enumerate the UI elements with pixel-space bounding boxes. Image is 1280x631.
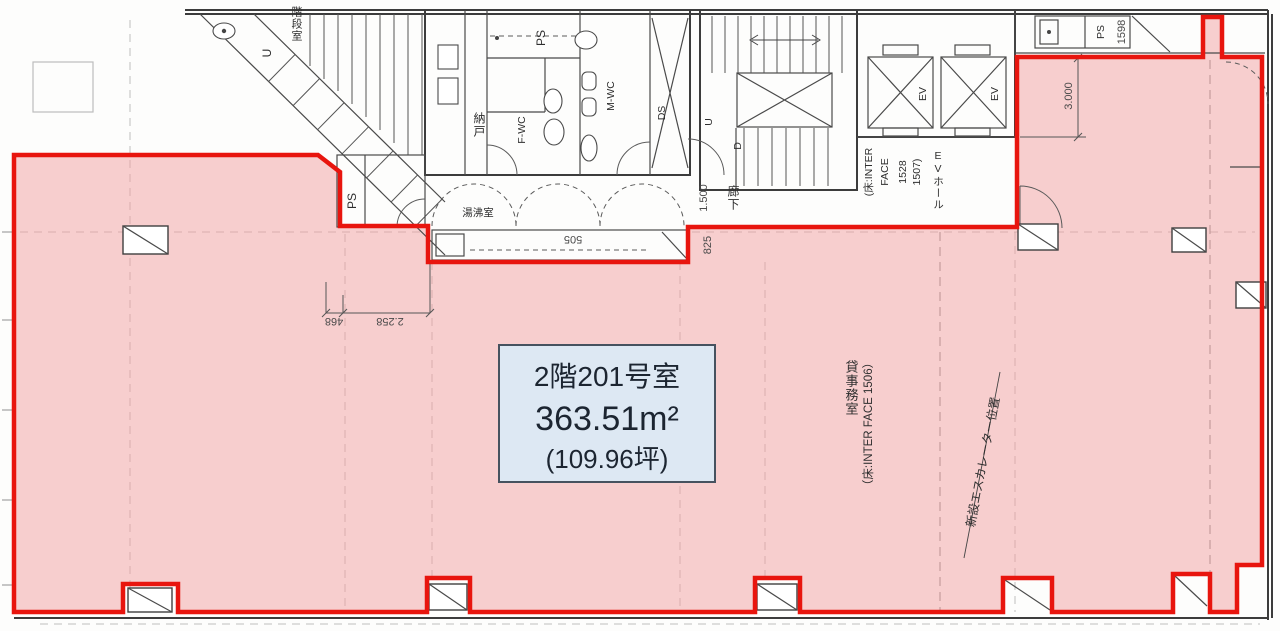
duct-shaft-label: DS bbox=[656, 106, 668, 121]
toilet-fixture bbox=[544, 89, 562, 113]
ev-hall-floor-note-3: 1528 bbox=[897, 160, 909, 184]
sink-fixture bbox=[581, 135, 597, 161]
dim-2258: 2.258 bbox=[376, 315, 404, 327]
corridor-width-dim: 1.500 bbox=[698, 184, 710, 212]
corridor-label: 廊下 bbox=[726, 184, 740, 211]
dim-468: 468 bbox=[325, 315, 343, 327]
office-floor-note: （床:INTER FACE 1506） bbox=[861, 357, 875, 491]
ev-hall-floor-note-1: (床:INTER bbox=[862, 147, 875, 196]
pipe-shaft-top-label: PS bbox=[534, 30, 548, 46]
office-label: 貸事務室 bbox=[844, 359, 859, 416]
unit-label-box: 2階201号室 363.51m² (109.96坪) bbox=[499, 345, 715, 482]
elevator-left-label: EV bbox=[917, 87, 929, 101]
site-reference-square bbox=[33, 62, 93, 112]
stair-down-label: D bbox=[732, 142, 744, 150]
ev-hall-floor-note-2: FACE bbox=[879, 158, 891, 185]
male-wc-label: M-WC bbox=[605, 81, 617, 111]
unit-name: 2階201号室 bbox=[534, 361, 680, 392]
urinal-fixture bbox=[582, 98, 596, 116]
ps-dim: 1598 bbox=[1116, 20, 1128, 44]
pipe-shaft-left-label: PS bbox=[345, 193, 359, 209]
counter-depth-dim: 825 bbox=[702, 236, 714, 254]
elevator-right-label: EV bbox=[989, 87, 1001, 101]
right-block-dim: 3.000 bbox=[1063, 82, 1075, 110]
ev-hall-label: EVホール bbox=[932, 150, 944, 211]
stair-up-label-left: U bbox=[260, 49, 274, 58]
floor-plan-drawing: U 階段室 PS 納戸 F-WC M-WC DS PS bbox=[0, 0, 1280, 631]
toilet-fixture bbox=[544, 119, 564, 145]
unit-area: 363.51m² bbox=[535, 400, 679, 438]
unit-tsubo: (109.96坪) bbox=[546, 444, 669, 474]
female-wc-label: F-WC bbox=[516, 116, 528, 144]
storage-fixture bbox=[438, 45, 458, 69]
ev-hall-floor-note-4: 1507) bbox=[911, 159, 923, 186]
pipe-shaft-right-label: PS bbox=[1095, 25, 1107, 39]
stairwell-label: 階段室 bbox=[290, 5, 303, 42]
toilet-fixture bbox=[575, 31, 597, 49]
floor-plan-page: U 階段室 PS 納戸 F-WC M-WC DS PS bbox=[0, 0, 1280, 631]
counter-dim: 505 bbox=[564, 233, 582, 245]
stair-up-label: U bbox=[703, 118, 715, 126]
urinal-fixture bbox=[582, 72, 596, 90]
storage-room-label: 納戸 bbox=[472, 112, 486, 138]
kitchenette-label: 湯沸室 bbox=[462, 206, 494, 219]
storage-fixture bbox=[438, 78, 458, 104]
